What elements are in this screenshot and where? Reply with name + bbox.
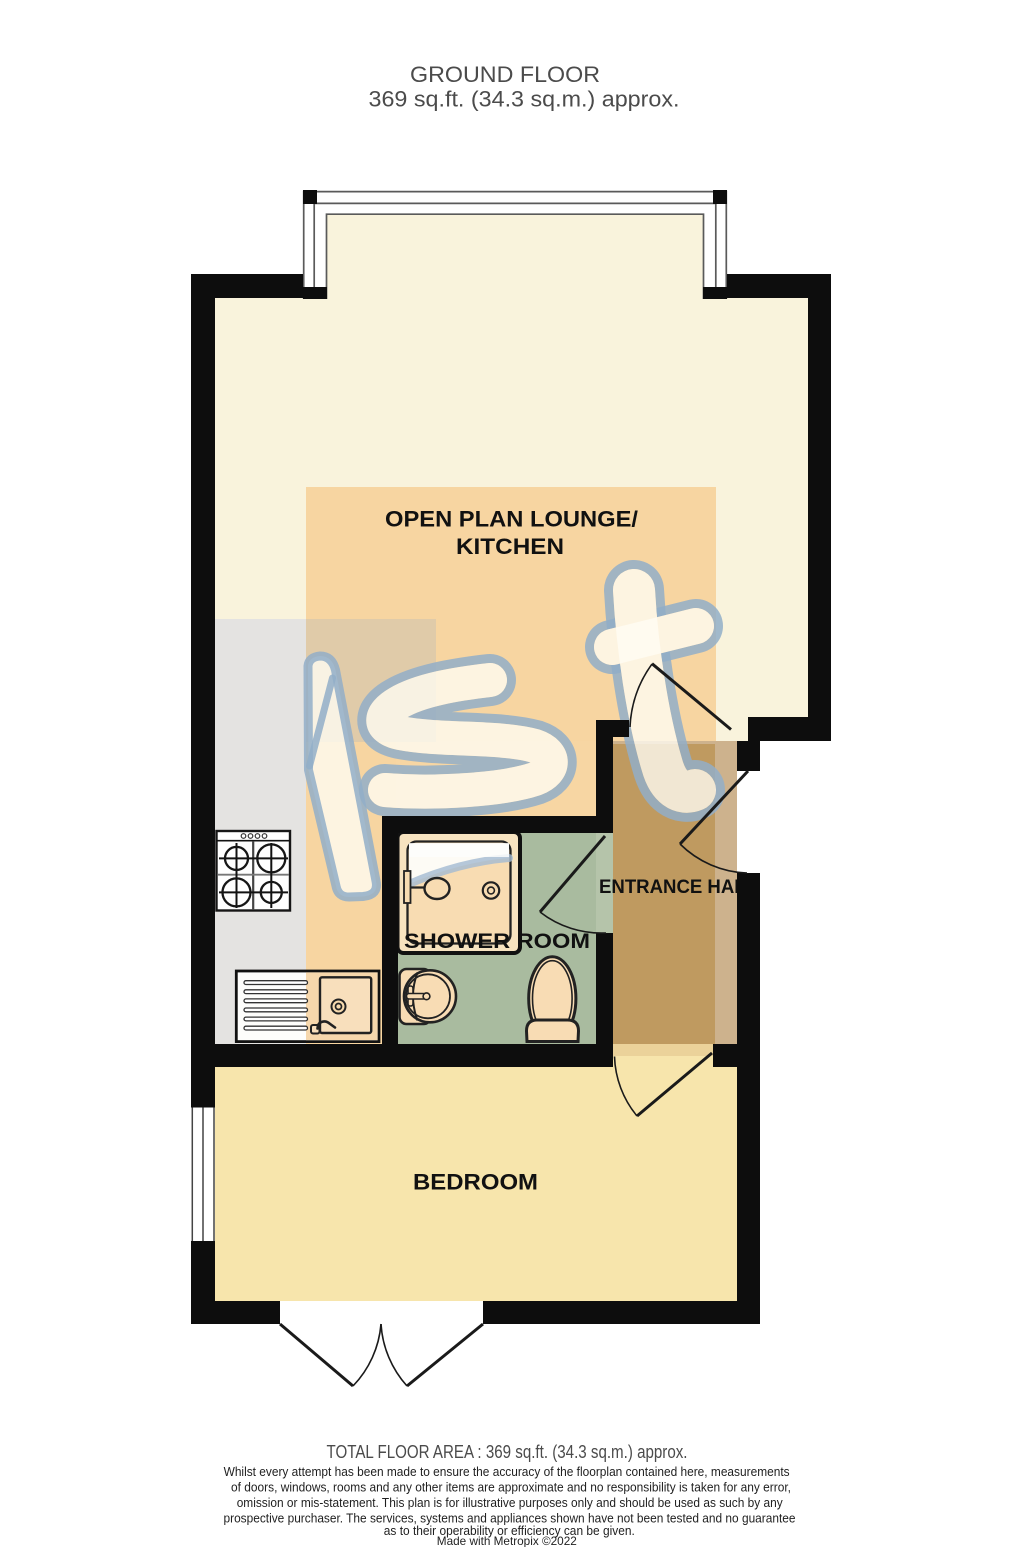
svg-text:GROUND FLOOR: GROUND FLOOR	[410, 62, 600, 87]
svg-text:TOTAL FLOOR AREA : 369 sq.ft.: TOTAL FLOOR AREA : 369 sq.ft. (34.3 sq.m…	[327, 1442, 688, 1462]
svg-text:Whilst every attempt has been: Whilst every attempt has been made to en…	[224, 1464, 790, 1479]
svg-text:Made with Metropix ©2022: Made with Metropix ©2022	[437, 1535, 577, 1547]
svg-text:omission or mis-statement. Thi: omission or mis-statement. This plan is …	[237, 1495, 784, 1510]
svg-text:BEDROOM: BEDROOM	[413, 1170, 538, 1195]
svg-text:KITCHEN: KITCHEN	[456, 534, 564, 559]
svg-text:OPEN PLAN LOUNGE/: OPEN PLAN LOUNGE/	[385, 507, 638, 532]
svg-text:ENTRANCE HALL: ENTRANCE HALL	[599, 876, 757, 898]
svg-text:SHOWER ROOM: SHOWER ROOM	[404, 930, 590, 953]
svg-text:of doors, windows, rooms and a: of doors, windows, rooms and any other i…	[231, 1480, 791, 1495]
svg-text:369 sq.ft. (34.3 sq.m.) approx: 369 sq.ft. (34.3 sq.m.) approx.	[369, 87, 680, 112]
